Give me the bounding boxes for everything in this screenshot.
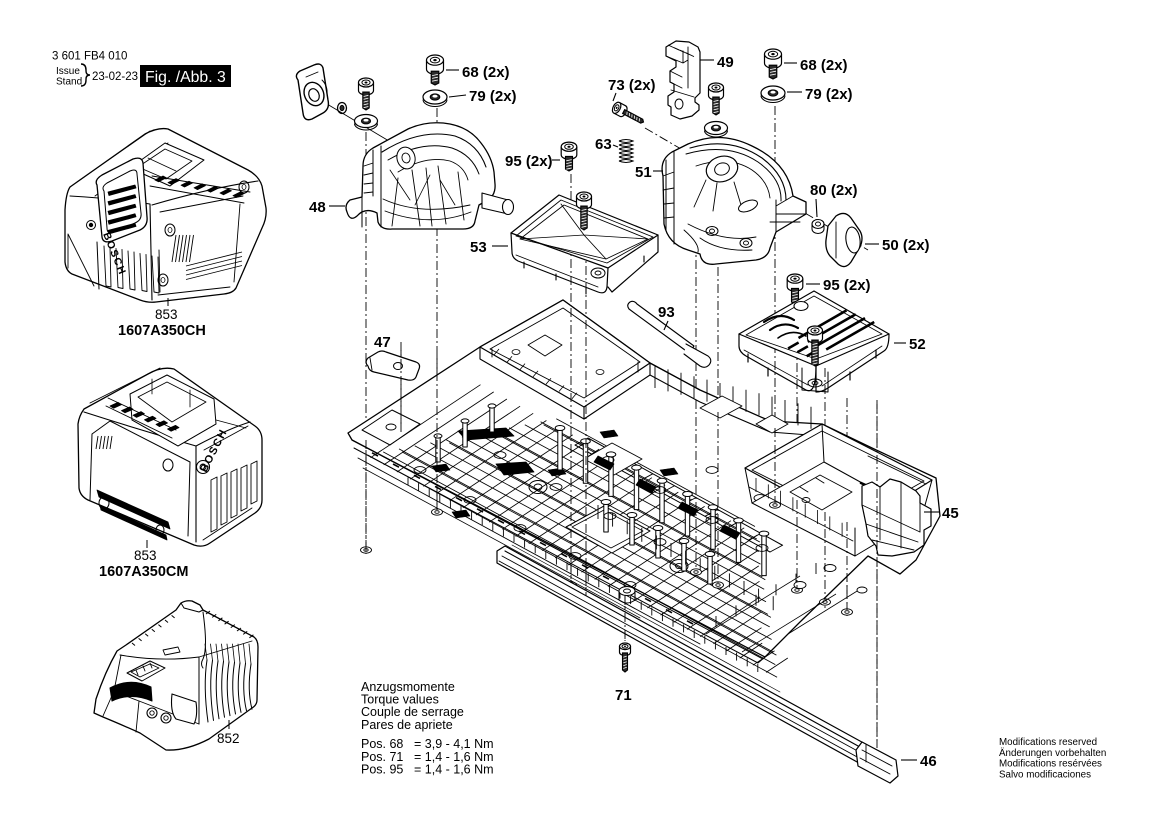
svg-text:95 (2x): 95 (2x)	[823, 277, 871, 294]
svg-text:3 601 FB4 010: 3 601 FB4 010	[52, 51, 127, 63]
svg-text:51: 51	[635, 164, 652, 181]
svg-text:Modifications resérvées: Modifications resérvées	[999, 759, 1102, 770]
svg-text:853: 853	[134, 548, 157, 563]
svg-text:Modifications reserved: Modifications reserved	[999, 737, 1097, 748]
svg-text:47: 47	[374, 334, 391, 351]
svg-text:79 (2x): 79 (2x)	[805, 86, 853, 103]
svg-text:68 (2x): 68 (2x)	[462, 64, 510, 81]
svg-text:852: 852	[217, 731, 240, 746]
svg-text:Fig. /Abb. 3: Fig. /Abb. 3	[145, 69, 226, 86]
svg-text:80 (2x): 80 (2x)	[810, 182, 858, 199]
svg-text:Änderungen vorbehalten: Änderungen vorbehalten	[999, 748, 1106, 759]
svg-text:Issue: Issue	[56, 66, 80, 77]
svg-text:68 (2x): 68 (2x)	[800, 57, 848, 74]
svg-text:46: 46	[920, 753, 937, 770]
svg-text:73 (2x): 73 (2x)	[608, 77, 656, 94]
svg-text:1607A350CM: 1607A350CM	[99, 564, 188, 580]
svg-text:93: 93	[658, 304, 675, 321]
svg-text:Pos. 95: Pos. 95	[361, 763, 403, 777]
svg-text:Salvo modificaciones: Salvo modificaciones	[999, 769, 1091, 780]
svg-text:Pares de apriete: Pares de apriete	[361, 718, 453, 732]
svg-text:95 (2x): 95 (2x)	[505, 153, 553, 170]
svg-text:71: 71	[615, 687, 632, 704]
svg-text:23-02-23: 23-02-23	[92, 71, 138, 83]
svg-text:Stand: Stand	[56, 77, 82, 88]
svg-text:48: 48	[309, 199, 326, 216]
svg-text:52: 52	[909, 336, 926, 353]
svg-text:= 1,4 - 1,6 Nm: = 1,4 - 1,6 Nm	[414, 763, 494, 777]
svg-text:50 (2x): 50 (2x)	[882, 237, 930, 254]
svg-text:63: 63	[595, 136, 612, 153]
svg-text:45: 45	[942, 505, 959, 522]
svg-text:49: 49	[717, 54, 734, 71]
svg-text:53: 53	[470, 239, 487, 256]
svg-text:853: 853	[155, 307, 178, 322]
svg-text:1607A350CH: 1607A350CH	[118, 323, 206, 339]
svg-text:79 (2x): 79 (2x)	[469, 88, 517, 105]
